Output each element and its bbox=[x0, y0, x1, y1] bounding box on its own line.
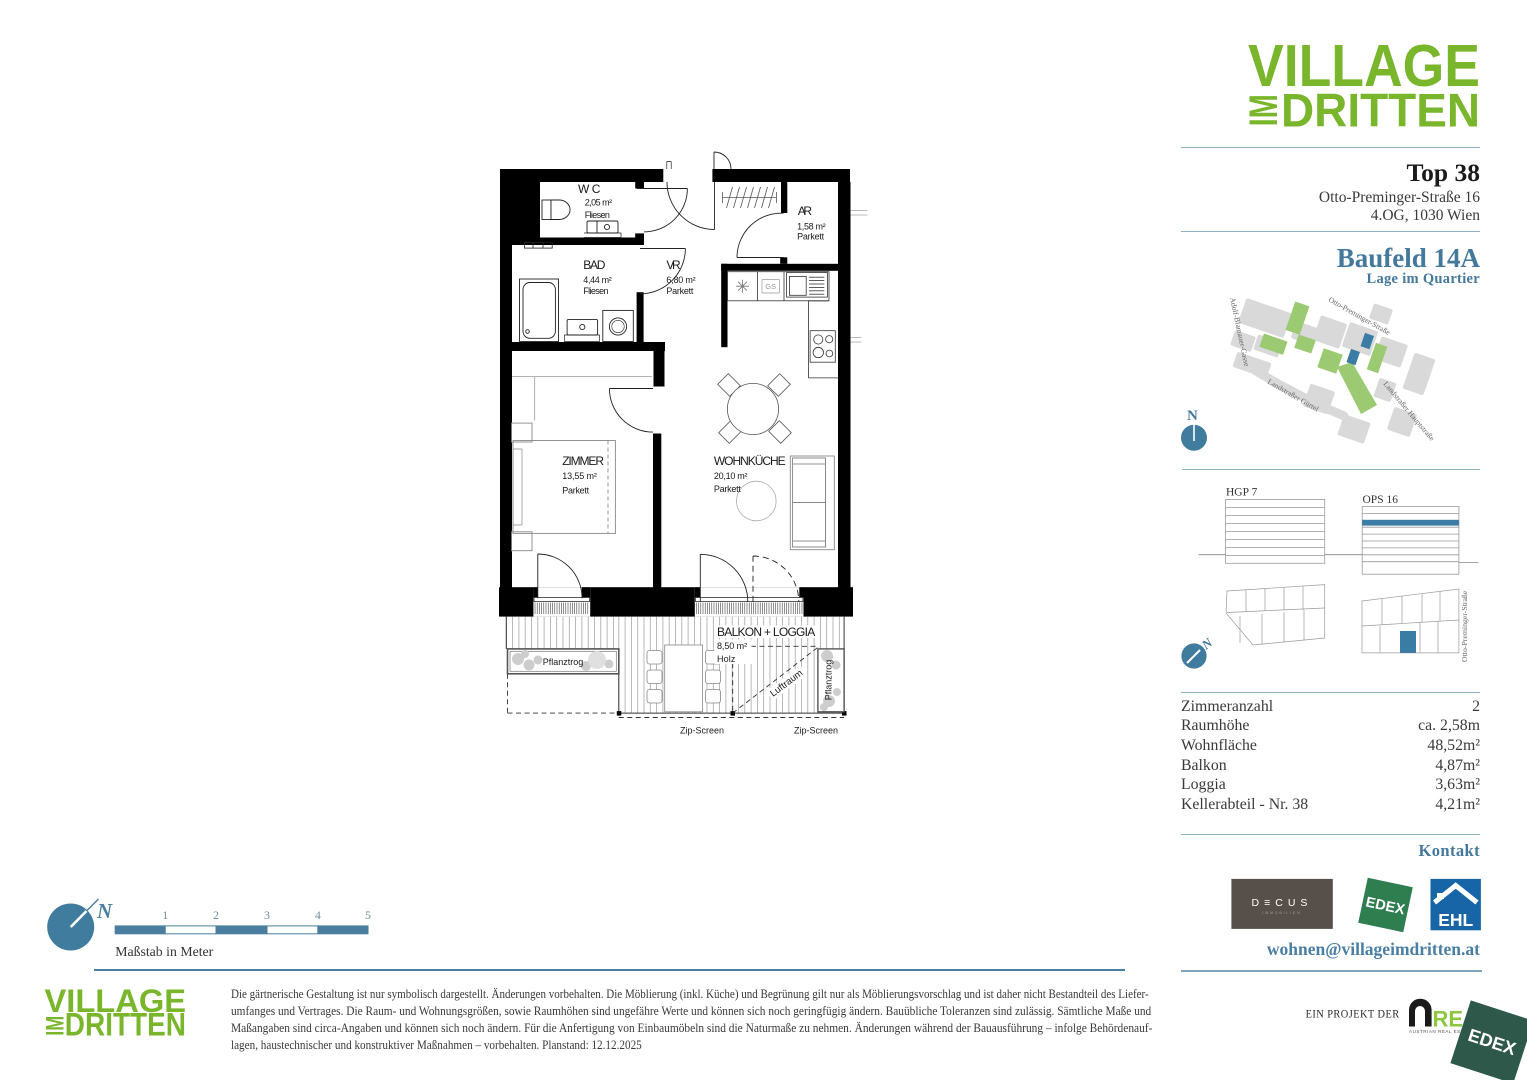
svg-text:ZIMMER: ZIMMER bbox=[562, 454, 604, 468]
svg-text:OPS 16: OPS 16 bbox=[1363, 494, 1399, 506]
svg-text:IMMOBILIEN: IMMOBILIEN bbox=[1262, 911, 1301, 915]
svg-text:DRITTEN: DRITTEN bbox=[65, 1007, 186, 1040]
svg-text:N: N bbox=[1187, 408, 1198, 424]
svg-text:WC: WC bbox=[578, 182, 601, 196]
svg-text:Fliesen: Fliesen bbox=[583, 286, 608, 296]
svg-text:8,50 m²: 8,50 m² bbox=[717, 641, 747, 651]
svg-text:D≡CUS: D≡CUS bbox=[1252, 897, 1313, 909]
svg-text:Parkett: Parkett bbox=[666, 286, 693, 296]
svg-text:N: N bbox=[96, 899, 113, 923]
svg-text:EHL: EHL bbox=[1438, 910, 1473, 930]
svg-text:WOHNKÜCHE: WOHNKÜCHE bbox=[714, 454, 786, 468]
svg-text:BAD: BAD bbox=[583, 258, 605, 272]
svg-text:6,80 m²: 6,80 m² bbox=[666, 275, 695, 285]
svg-text:2: 2 bbox=[213, 908, 219, 922]
svg-text:4: 4 bbox=[315, 908, 321, 922]
svg-text:Maßstab in Meter: Maßstab in Meter bbox=[115, 944, 213, 959]
svg-text:3: 3 bbox=[264, 908, 270, 922]
svg-text:20,10 m²: 20,10 m² bbox=[714, 471, 748, 481]
svg-text:1,58 m²: 1,58 m² bbox=[797, 221, 826, 231]
svg-text:DRITTEN: DRITTEN bbox=[1281, 84, 1480, 135]
svg-text:13,55 m²: 13,55 m² bbox=[562, 471, 597, 481]
svg-text:EIN PROJEKT DER: EIN PROJEKT DER bbox=[1306, 1007, 1400, 1021]
svg-text:Pflanztrog: Pflanztrog bbox=[543, 657, 584, 667]
svg-text:Parkett: Parkett bbox=[714, 484, 741, 494]
svg-text:AR: AR bbox=[798, 204, 813, 218]
svg-text:Fliesen: Fliesen bbox=[585, 210, 610, 220]
svg-text:Otto-Preminger-Straße: Otto-Preminger-Straße bbox=[1460, 590, 1469, 662]
svg-text:Pflanztrog: Pflanztrog bbox=[824, 660, 834, 701]
svg-text:VR: VR bbox=[666, 258, 681, 272]
svg-text:Zip-Screen: Zip-Screen bbox=[680, 726, 724, 737]
svg-text:Zip-Screen: Zip-Screen bbox=[794, 726, 838, 737]
svg-text:Luftraum: Luftraum bbox=[768, 668, 805, 700]
svg-text:5: 5 bbox=[365, 908, 371, 922]
svg-text:IM: IM bbox=[1241, 94, 1286, 126]
svg-text:GS: GS bbox=[765, 282, 776, 291]
svg-text:Parkett: Parkett bbox=[562, 485, 589, 495]
svg-text:2,05 m²: 2,05 m² bbox=[585, 197, 612, 207]
svg-text:Parkett: Parkett bbox=[797, 232, 824, 242]
svg-text:RE: RE bbox=[1433, 1007, 1464, 1032]
svg-text:Holz: Holz bbox=[717, 654, 736, 664]
svg-text:4,44 m²: 4,44 m² bbox=[583, 275, 612, 285]
svg-text:BALKON + LOGGIA: BALKON + LOGGIA bbox=[717, 625, 815, 639]
svg-text:HGP 7: HGP 7 bbox=[1226, 487, 1257, 499]
svg-text:1: 1 bbox=[162, 908, 168, 922]
